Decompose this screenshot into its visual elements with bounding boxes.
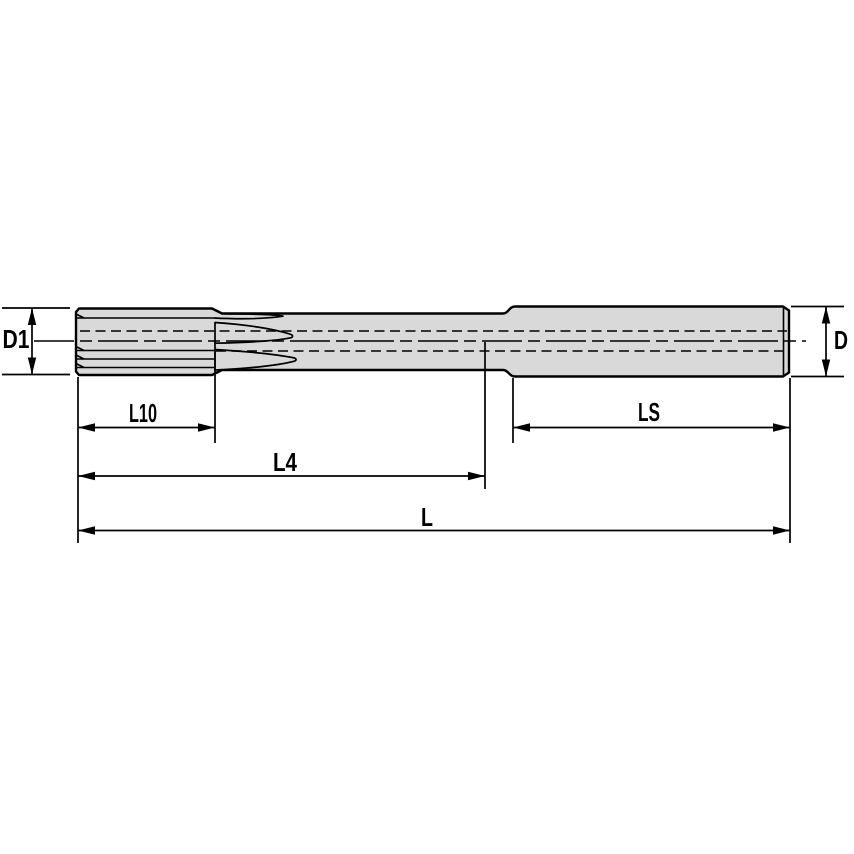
label-ls: LS [638, 397, 660, 427]
dimension-d: D [822, 307, 848, 377]
arrow-l10-left [78, 423, 95, 431]
arrow-d1-up [28, 308, 36, 325]
arrow-l4-left [78, 472, 95, 480]
arrow-l-right [773, 526, 790, 534]
label-d: D [834, 325, 848, 355]
arrow-d1-down [28, 358, 36, 375]
reamer-dimension-diagram: D1 D L10 LS L4 [0, 0, 854, 854]
dimension-l: L [78, 502, 790, 535]
arrow-ls-left [513, 423, 530, 431]
label-l4: L4 [273, 447, 297, 477]
drawing-canvas: D1 D L10 LS L4 [0, 0, 854, 854]
label-d1: D1 [3, 324, 30, 354]
label-l10: L10 [129, 398, 157, 428]
arrow-l4-right [468, 472, 485, 480]
label-l: L [421, 502, 433, 532]
arrow-ls-right [773, 423, 790, 431]
dimension-ls: LS [513, 397, 790, 432]
dimension-l10: L10 [78, 398, 215, 432]
arrow-l10-right [198, 423, 215, 431]
dimension-l4: L4 [78, 447, 485, 480]
dimension-d1: D1 [3, 308, 37, 375]
arrow-l-left [78, 526, 95, 534]
arrow-d-up [822, 307, 830, 324]
arrow-d-down [822, 360, 830, 377]
